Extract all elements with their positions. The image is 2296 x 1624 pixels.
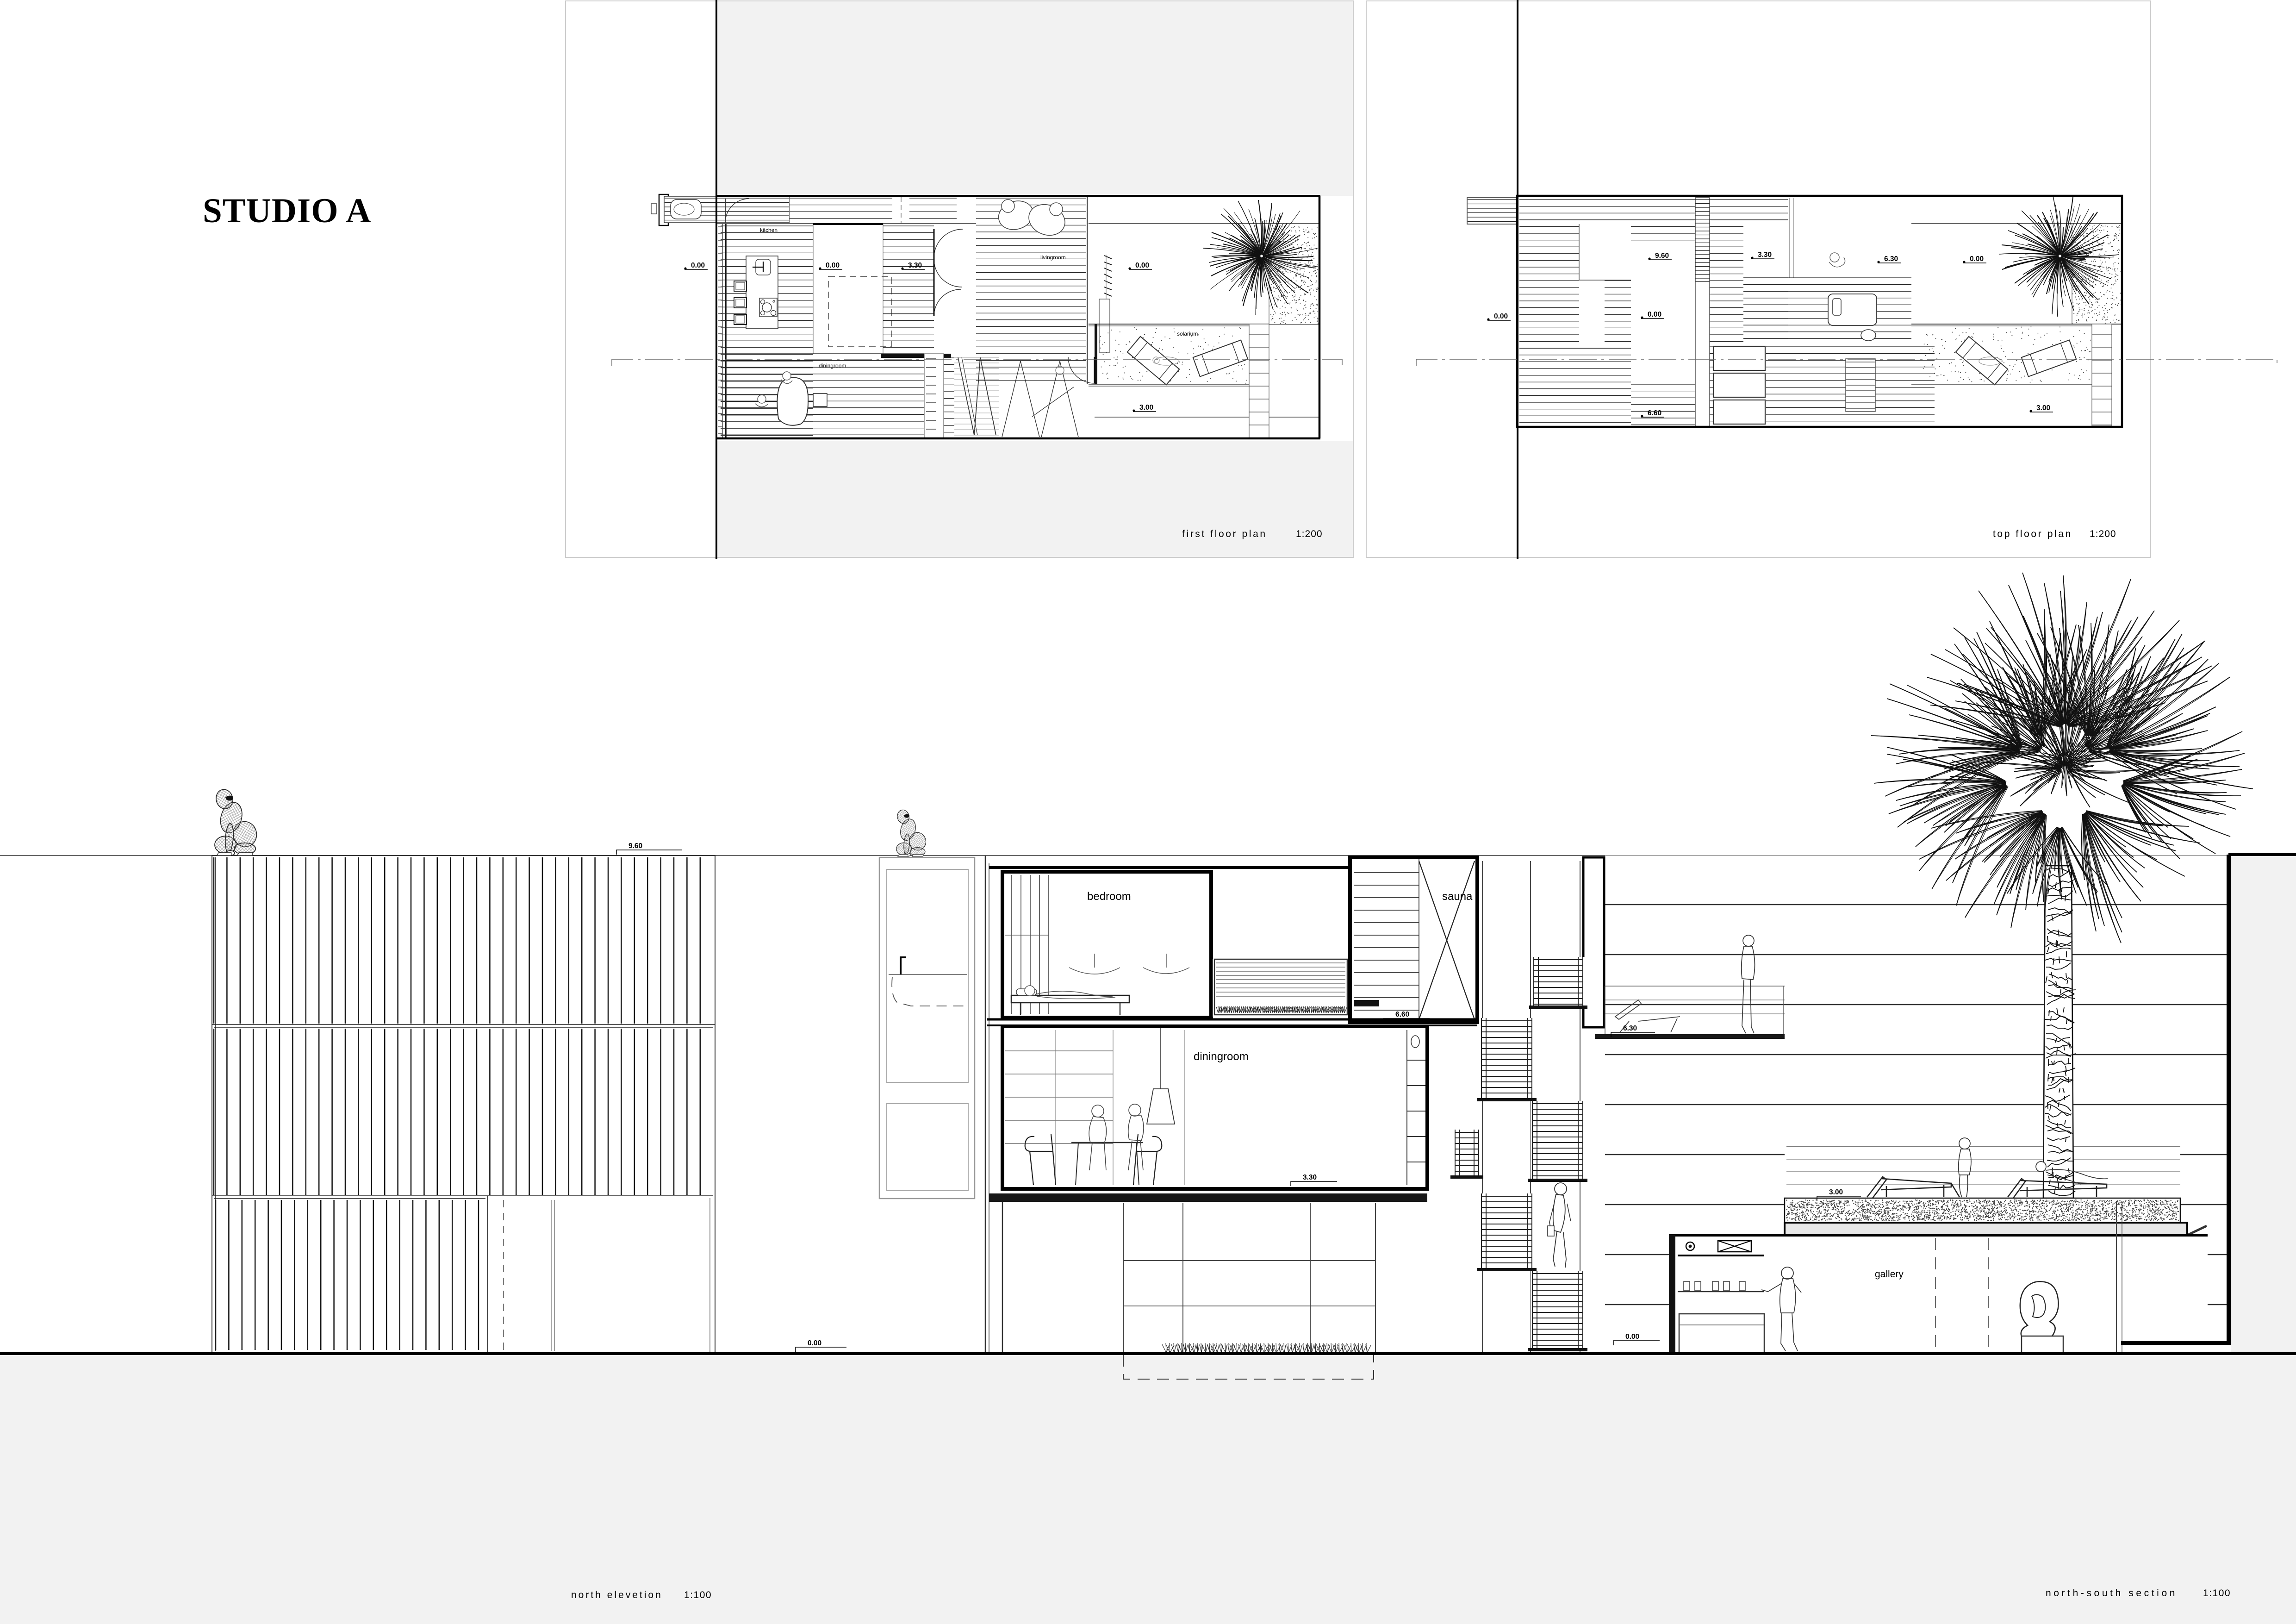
svg-text:north-south section: north-south section [2046, 1588, 2178, 1599]
svg-text:0.00: 0.00 [1625, 1333, 1639, 1341]
svg-text:solarium: solarium [1177, 331, 1198, 337]
svg-text:3.30: 3.30 [1303, 1174, 1317, 1181]
svg-text:0.00: 0.00 [1135, 262, 1149, 269]
svg-text:0.00: 0.00 [826, 262, 840, 269]
svg-text:livingroom: livingroom [1040, 254, 1066, 261]
svg-text:1:200: 1:200 [2090, 529, 2116, 539]
svg-text:3.00: 3.00 [1139, 404, 1153, 412]
svg-text:6.30: 6.30 [1623, 1024, 1637, 1032]
svg-text:north elevetion: north elevetion [571, 1590, 663, 1600]
svg-text:diningroom: diningroom [1194, 1050, 1249, 1063]
svg-text:0.00: 0.00 [1494, 312, 1508, 320]
svg-text:top floor plan: top floor plan [1993, 529, 2072, 539]
svg-text:3.00: 3.00 [2036, 404, 2050, 412]
svg-text:kitchen: kitchen [760, 227, 778, 233]
svg-text:gallery: gallery [1875, 1269, 1904, 1280]
svg-text:bedroom: bedroom [1087, 890, 1131, 903]
svg-text:3.00: 3.00 [1829, 1188, 1843, 1196]
svg-text:6.60: 6.60 [1395, 1011, 1409, 1018]
svg-text:0.00: 0.00 [1970, 255, 1984, 263]
svg-text:3.30: 3.30 [908, 262, 922, 269]
svg-text:0.00: 0.00 [808, 1339, 821, 1347]
svg-text:3.30: 3.30 [1758, 251, 1772, 259]
svg-text:1:100: 1:100 [684, 1590, 712, 1600]
svg-text:9.60: 9.60 [1655, 252, 1669, 260]
svg-text:diningroom: diningroom [819, 362, 846, 369]
svg-text:STUDIO A: STUDIO A [203, 192, 371, 230]
svg-text:1:100: 1:100 [2203, 1588, 2231, 1599]
svg-text:0.00: 0.00 [691, 262, 705, 269]
svg-text:sauna: sauna [1442, 890, 1473, 903]
svg-text:0.00: 0.00 [1648, 311, 1661, 319]
svg-text:1:200: 1:200 [1296, 529, 1323, 539]
svg-text:first floor plan: first floor plan [1182, 529, 1267, 539]
svg-text:6.60: 6.60 [1648, 409, 1661, 417]
svg-text:6.30: 6.30 [1884, 255, 1898, 263]
svg-text:9.60: 9.60 [628, 842, 642, 850]
